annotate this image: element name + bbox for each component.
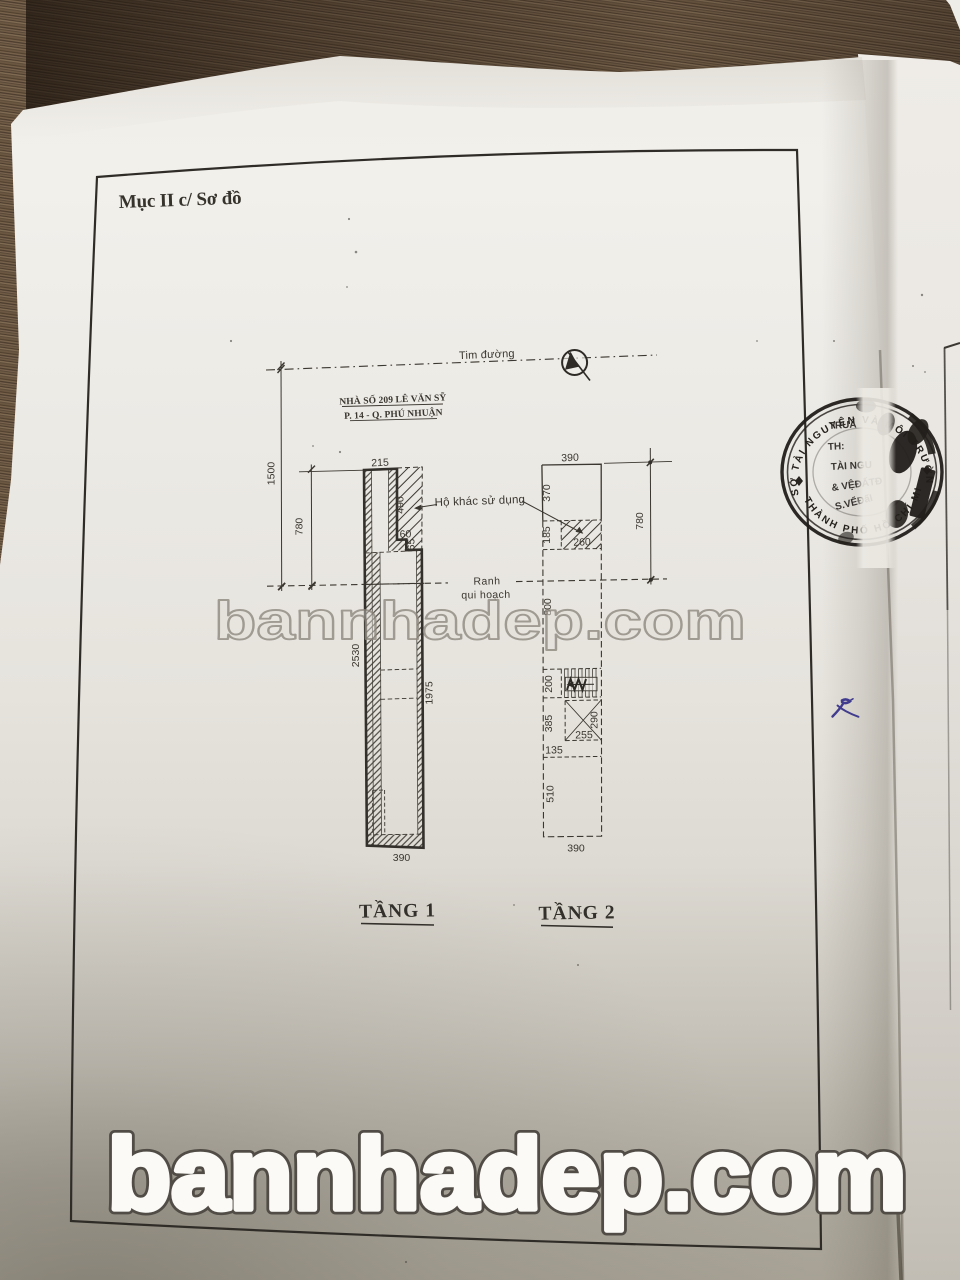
svg-text:185: 185 xyxy=(541,526,553,544)
svg-text:215: 215 xyxy=(371,457,389,470)
svg-text:200: 200 xyxy=(543,675,555,693)
svg-text:390: 390 xyxy=(567,843,585,855)
svg-text:780: 780 xyxy=(634,512,646,530)
svg-text:1500: 1500 xyxy=(266,462,278,486)
svg-text:370: 370 xyxy=(541,484,553,502)
svg-text:385: 385 xyxy=(543,715,555,733)
svg-text:780: 780 xyxy=(294,518,306,536)
svg-text:290: 290 xyxy=(588,711,600,729)
svg-text:135: 135 xyxy=(545,744,563,756)
svg-text:260: 260 xyxy=(573,536,591,549)
svg-text:Mục II c/ Sơ đồ: Mục II c/ Sơ đồ xyxy=(118,188,241,213)
svg-text:bannhadep.com: bannhadep.com xyxy=(108,1119,907,1231)
svg-text:Tim đường: Tim đường xyxy=(459,348,515,362)
svg-text:390: 390 xyxy=(393,852,411,864)
svg-text:TẦNG 1: TẦNG 1 xyxy=(359,899,436,922)
svg-text:TH:: TH: xyxy=(828,441,845,453)
svg-text:390: 390 xyxy=(561,452,579,465)
svg-text:Ranh: Ranh xyxy=(473,575,500,587)
svg-text:510: 510 xyxy=(545,785,557,803)
svg-text:1975: 1975 xyxy=(424,681,436,705)
svg-text:bannhadep.com: bannhadep.com xyxy=(214,591,746,651)
svg-text:255: 255 xyxy=(575,729,593,741)
svg-text:490: 490 xyxy=(395,496,407,514)
svg-text:TẦNG 2: TẦNG 2 xyxy=(538,901,615,924)
svg-text:65: 65 xyxy=(405,539,417,551)
